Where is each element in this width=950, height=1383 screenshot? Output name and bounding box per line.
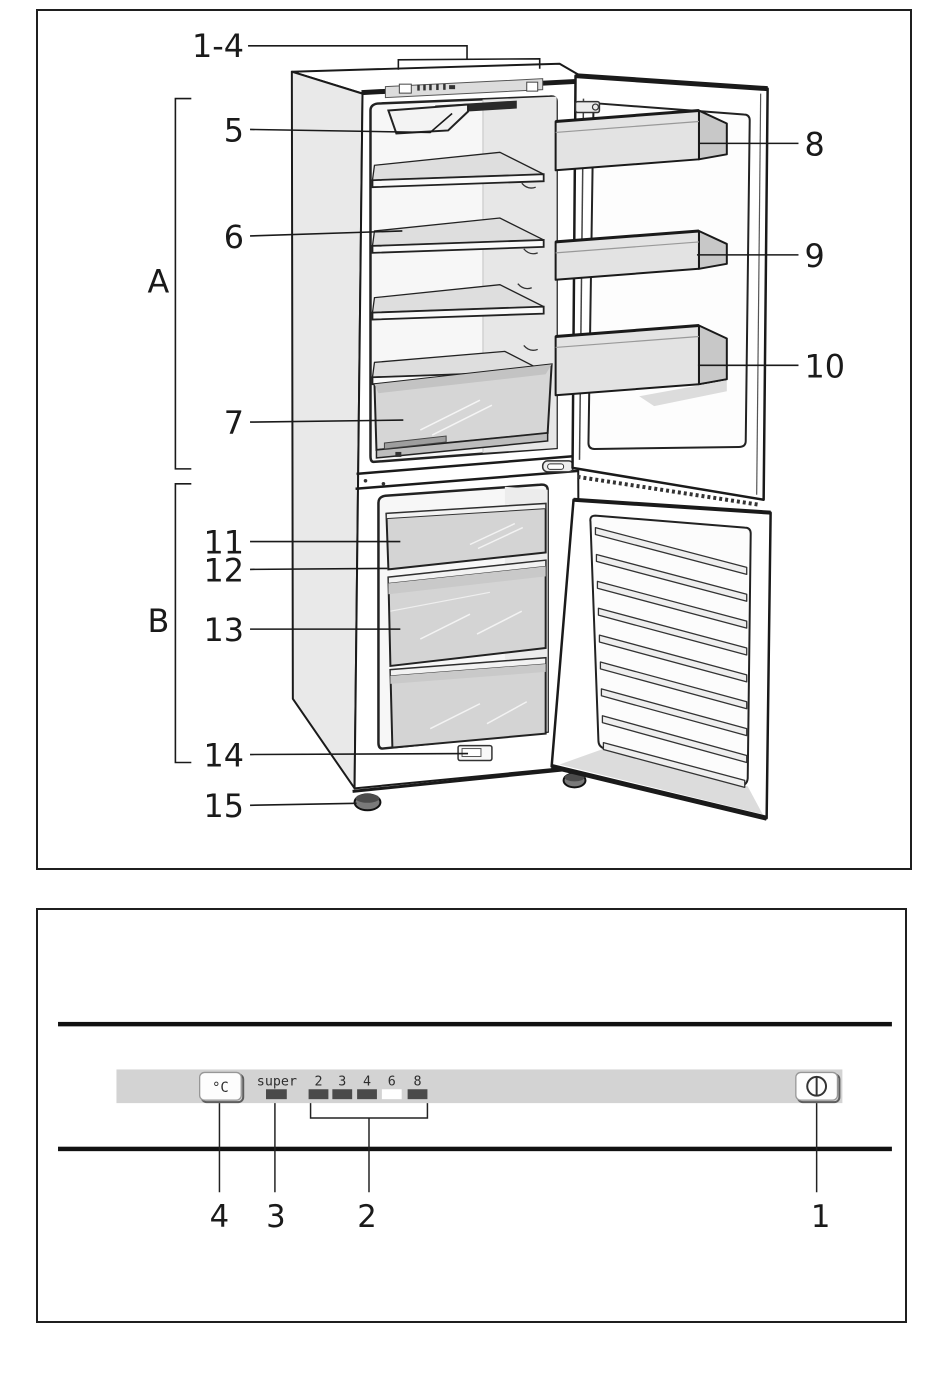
section-bracket-A (175, 99, 191, 469)
label-light: 5 (224, 111, 244, 149)
scale-label-2: 2 (314, 1074, 322, 1089)
freezer-drawer-2 (388, 560, 545, 666)
lamp-icon-box (527, 82, 538, 91)
scale-label-8: 8 (414, 1074, 422, 1089)
power-button (796, 1072, 840, 1102)
freezer-door (552, 500, 771, 819)
power-icon-box (399, 84, 411, 93)
label-bin-top: 8 (804, 125, 824, 163)
scale-lamp-3 (332, 1089, 352, 1099)
scale-lamp-2 (309, 1089, 329, 1099)
label-crisper: 7 (224, 404, 244, 442)
cabinet-side-panel (292, 72, 363, 789)
super-indicator-lamp (266, 1089, 287, 1099)
manual-page: 1-4 5 6 A 7 8 9 10 11 12 B 13 14 15 (0, 0, 950, 1383)
adjustable-foot (355, 794, 381, 810)
super-label: super (257, 1074, 297, 1089)
scale-label-3: 3 (338, 1074, 346, 1089)
temp-button-label: °C (212, 1080, 229, 1096)
label-bin-bottom: 10 (804, 347, 845, 385)
overview-figure-frame: 1-4 5 6 A 7 8 9 10 11 12 B 13 14 15 (36, 9, 912, 870)
scale-lamp-6-active (382, 1089, 402, 1099)
fridge-door (556, 76, 768, 505)
freezer-drawer-3 (390, 658, 545, 748)
callout-line-15 (250, 803, 357, 805)
separator-line-top (58, 1022, 892, 1026)
label-shelf: 6 (224, 218, 244, 256)
freezer-interior (378, 485, 547, 749)
panel-callout-labels: 4 3 2 1 (210, 1200, 831, 1235)
fridge-diagram: 1-4 5 6 A 7 8 9 10 11 12 B 13 14 15 (38, 11, 910, 868)
scale-lamp-4 (357, 1089, 377, 1099)
label-section-a: A (148, 263, 170, 301)
control-panel-figure-frame: °C super 2 3 4 6 8 (36, 908, 907, 1323)
label-freezer-shelf: 12 (204, 551, 245, 589)
separator-line-bottom (58, 1147, 892, 1151)
freezer-door-liner (590, 516, 750, 785)
temp-button: °C (200, 1072, 244, 1102)
scale-lamp-8 (408, 1089, 428, 1099)
label-temp-button: 4 (210, 1200, 230, 1235)
label-rating-plate: 14 (204, 736, 245, 774)
label-controls-group: 1-4 (192, 27, 244, 65)
section-bracket-B (175, 484, 191, 763)
label-bin-middle: 9 (804, 237, 824, 275)
control-panel-diagram: °C super 2 3 4 6 8 (38, 910, 905, 1321)
fridge-interior (370, 96, 556, 461)
door-hinge-top (576, 102, 600, 113)
scale-label-4: 4 (363, 1074, 371, 1089)
callout-line-1-4 (248, 46, 467, 60)
label-super-indicator: 3 (266, 1200, 286, 1235)
label-foot: 15 (204, 787, 245, 825)
callout-line-12 (250, 568, 387, 569)
label-freezer-drawer-middle: 13 (204, 611, 245, 649)
label-section-b: B (148, 602, 170, 640)
label-temperature-scale: 2 (357, 1200, 377, 1235)
callout-line-14 (250, 754, 468, 755)
callout-bracket-scale (311, 1103, 428, 1118)
scale-label-6: 6 (388, 1074, 396, 1089)
label-power-button: 1 (811, 1200, 831, 1235)
